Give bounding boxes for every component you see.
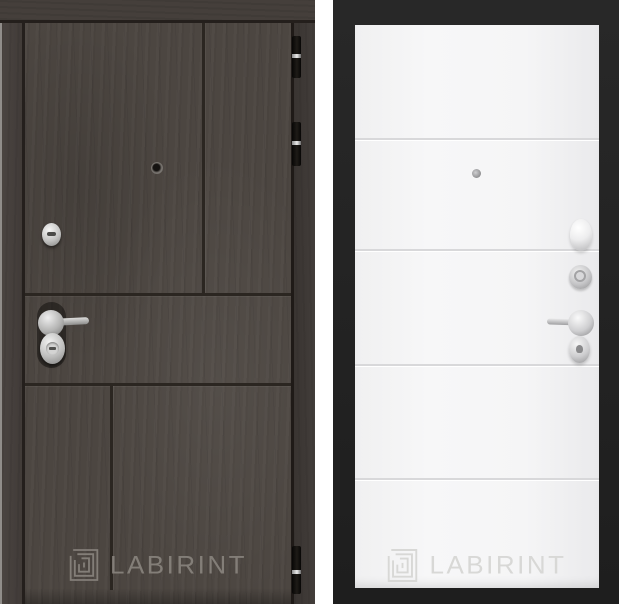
brand-text: LABIRINT bbox=[110, 552, 247, 577]
leaf-groove-horizontal-2 bbox=[25, 383, 291, 386]
keyhole-escutcheon bbox=[40, 333, 65, 364]
keyhole-slot bbox=[49, 347, 56, 350]
thumbturn-knob bbox=[570, 219, 592, 251]
leaf-bottom-shadow bbox=[25, 588, 291, 604]
door-product-composite: LABIRINT LABIRINT bbox=[0, 0, 619, 604]
keyhole-ring bbox=[46, 342, 59, 355]
labirint-logo-icon bbox=[69, 548, 99, 582]
peephole bbox=[472, 169, 481, 178]
leaf-groove-horizontal-1 bbox=[25, 293, 291, 296]
brand-text: LABIRINT bbox=[429, 552, 566, 577]
handle-rose bbox=[568, 310, 594, 336]
hinge-upper-pin bbox=[292, 141, 301, 145]
dark-door-photo: LABIRINT bbox=[0, 0, 315, 604]
leaf-molding-line-3 bbox=[355, 364, 599, 366]
door-frame-right-stile bbox=[294, 20, 315, 604]
door-frame-left-stile bbox=[2, 0, 22, 604]
photo-left-edge-highlight bbox=[0, 0, 2, 604]
white-door-photo: LABIRINT bbox=[333, 0, 619, 604]
lock-cylinder bbox=[569, 265, 592, 289]
door-right-gap-line bbox=[291, 23, 294, 604]
leaf-groove-vertical-upper bbox=[202, 23, 205, 293]
brand-logo: LABIRINT bbox=[355, 543, 599, 587]
leaf-molding-line-4 bbox=[355, 478, 599, 480]
leaf-molding-line-2 bbox=[355, 249, 599, 251]
labirint-logo-icon bbox=[387, 548, 418, 583]
leaf-molding-line-1 bbox=[355, 138, 599, 140]
keyhole-slot bbox=[576, 345, 583, 353]
peephole bbox=[151, 162, 163, 174]
hinge-top-pin bbox=[292, 54, 301, 58]
lock-cylinder-escutcheon bbox=[42, 223, 61, 246]
brand-logo: LABIRINT bbox=[25, 544, 291, 586]
door-frame-top-rail bbox=[0, 0, 315, 20]
white-door-leaf bbox=[355, 25, 599, 588]
hinge-bottom-pin bbox=[292, 570, 301, 574]
keyhole-slot bbox=[47, 232, 56, 236]
keyhole-escutcheon bbox=[569, 336, 590, 363]
lock-cylinder-ring bbox=[574, 270, 586, 282]
